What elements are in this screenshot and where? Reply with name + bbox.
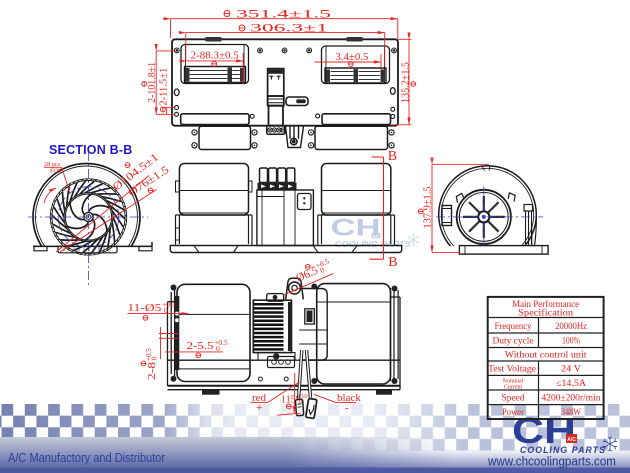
svg-text:black: black (337, 392, 361, 404)
svg-text:A/C Manufactory and Distributo: A/C Manufactory and Distributor (8, 451, 165, 465)
svg-text:A/C: A/C (373, 234, 380, 238)
svg-text:Frequency: Frequency (495, 321, 532, 331)
svg-text:COOLING PARTS: COOLING PARTS (335, 240, 412, 249)
svg-text:≤14.5A: ≤14.5A (556, 378, 587, 388)
svg-text:351.4±1.5: 351.4±1.5 (236, 6, 331, 20)
svg-text:SECTION B-B: SECTION B-B (49, 143, 132, 157)
svg-text:EQS: EQS (50, 168, 62, 175)
svg-text:306.3±1: 306.3±1 (250, 21, 328, 35)
svg-text:Power: Power (502, 407, 524, 417)
svg-text:3.4±0.5: 3.4±0.5 (335, 52, 368, 63)
svg-text:100%: 100% (562, 335, 580, 345)
svg-text:0: 0 (151, 356, 159, 360)
svg-text:Without control unit: Without control unit (505, 349, 588, 359)
svg-text:-: - (345, 402, 349, 414)
svg-text:4200±200r/min: 4200±200r/min (542, 392, 602, 402)
svg-text:348W: 348W (561, 407, 581, 417)
svg-text:20000Hz: 20000Hz (555, 321, 587, 331)
svg-text:Duty cycle: Duty cycle (493, 335, 534, 345)
svg-text:Test Voltage: Test Voltage (488, 363, 536, 373)
svg-text:135.2±1.5: 135.2±1.5 (401, 62, 412, 103)
svg-text:0: 0 (216, 344, 220, 353)
svg-text:2-5.5: 2-5.5 (187, 340, 215, 352)
svg-text:24 V: 24 V (561, 363, 582, 373)
svg-text:137.9±1.5: 137.9±1.5 (422, 187, 433, 229)
svg-text:0: 0 (164, 306, 168, 315)
svg-text:+: + (256, 402, 262, 414)
svg-text:2-101.8±1: 2-101.8±1 (147, 62, 158, 103)
svg-text:2-11.5±1: 2-11.5±1 (159, 68, 170, 106)
svg-text:Speed: Speed (502, 392, 526, 402)
svg-text:2-88.3±0.5: 2-88.3±0.5 (191, 51, 239, 62)
svg-text:Current: Current (504, 385, 523, 391)
svg-text:Specification: Specification (518, 308, 573, 319)
svg-text:B: B (388, 149, 397, 164)
svg-text:11-Ø5: 11-Ø5 (127, 302, 162, 314)
svg-text:0: 0 (299, 399, 302, 406)
svg-text:A/C: A/C (567, 437, 576, 443)
svg-text:COOLING PARTS: COOLING PARTS (520, 445, 606, 456)
svg-text:2-8: 2-8 (147, 362, 158, 380)
svg-text:B: B (388, 255, 397, 270)
